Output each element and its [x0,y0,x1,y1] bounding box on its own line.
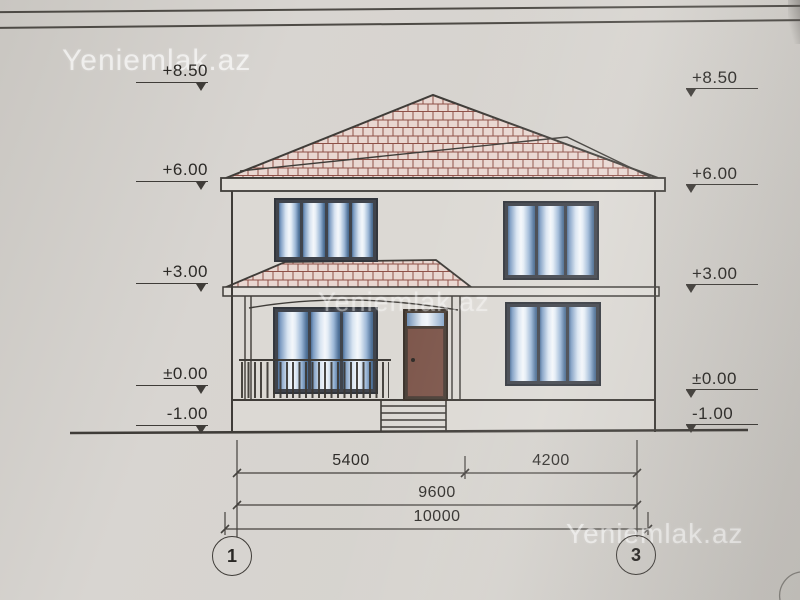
elevation-label: +3.00 [162,262,208,281]
window-upper-left [274,198,378,262]
door-leaf [407,328,444,397]
elevation-marker-right-850: +8.50 [686,68,758,89]
dimension-label-10000: 10000 [402,508,472,526]
floor-band [223,287,659,296]
window-pane [352,203,373,257]
elevation-label: ±0.00 [163,364,208,383]
elevation-marker-left-850: +8.50 [136,61,208,83]
dimension-label-5400: 5400 [316,452,386,470]
elevation-label: +6.00 [692,164,738,183]
window-pane [540,307,567,381]
transom-window [407,313,444,326]
axis-bubble-1: 1 [212,536,252,576]
balustrade-balusters [241,362,389,398]
down-arrow-icon [196,284,206,292]
axis-bubble-3: 3 [616,535,656,575]
door-knob [411,358,415,362]
down-arrow-icon [686,185,696,193]
ground-line [70,430,748,433]
dimension-label-9600: 9600 [402,484,472,502]
elevation-label: -1.00 [692,404,733,423]
elevation-label: +6.00 [162,160,208,179]
elevation-label: +3.00 [692,264,738,283]
dimension-label-4200: 4200 [516,452,586,470]
down-arrow-icon [196,386,206,394]
window-pane [303,203,324,257]
window-pane [567,206,594,275]
elevation-label: ±0.00 [692,369,737,388]
elevation-marker-right-000: ±0.00 [686,369,758,390]
down-arrow-icon [686,285,696,293]
elevation-label: +8.50 [692,68,738,87]
elevation-marker-left-m100: -1.00 [136,404,208,426]
window-lower-right [505,302,601,386]
elevation-marker-right-m100: -1.00 [686,404,758,425]
down-arrow-icon [196,83,206,91]
entry-door [403,309,448,401]
window-pane [569,307,596,381]
down-arrow-icon [196,426,206,434]
elevation-marker-left-300: +3.00 [136,262,208,284]
down-arrow-icon [686,89,696,97]
window-pane [510,307,537,381]
down-arrow-icon [686,390,696,398]
down-arrow-icon [196,182,206,190]
eave-band [221,178,665,191]
window-pane [508,206,535,275]
window-upper-right [503,201,599,280]
elevation-label: -1.00 [167,404,208,423]
blueprint-sheet: Yeniemlak.az Yeniemlak.az Yeniemlak.az +… [0,0,800,600]
elevation-marker-left-000: ±0.00 [136,364,208,386]
elevation-label: +8.50 [162,61,208,80]
window-pane [328,203,349,257]
down-arrow-icon [686,425,696,433]
house-elevation-drawing [0,0,800,600]
elevation-marker-right-300: +3.00 [686,264,758,285]
elevation-marker-left-600: +6.00 [136,160,208,182]
paper-edge-arc [780,572,800,600]
elevation-marker-right-600: +6.00 [686,164,758,185]
window-pane [538,206,565,275]
window-pane [279,203,300,257]
